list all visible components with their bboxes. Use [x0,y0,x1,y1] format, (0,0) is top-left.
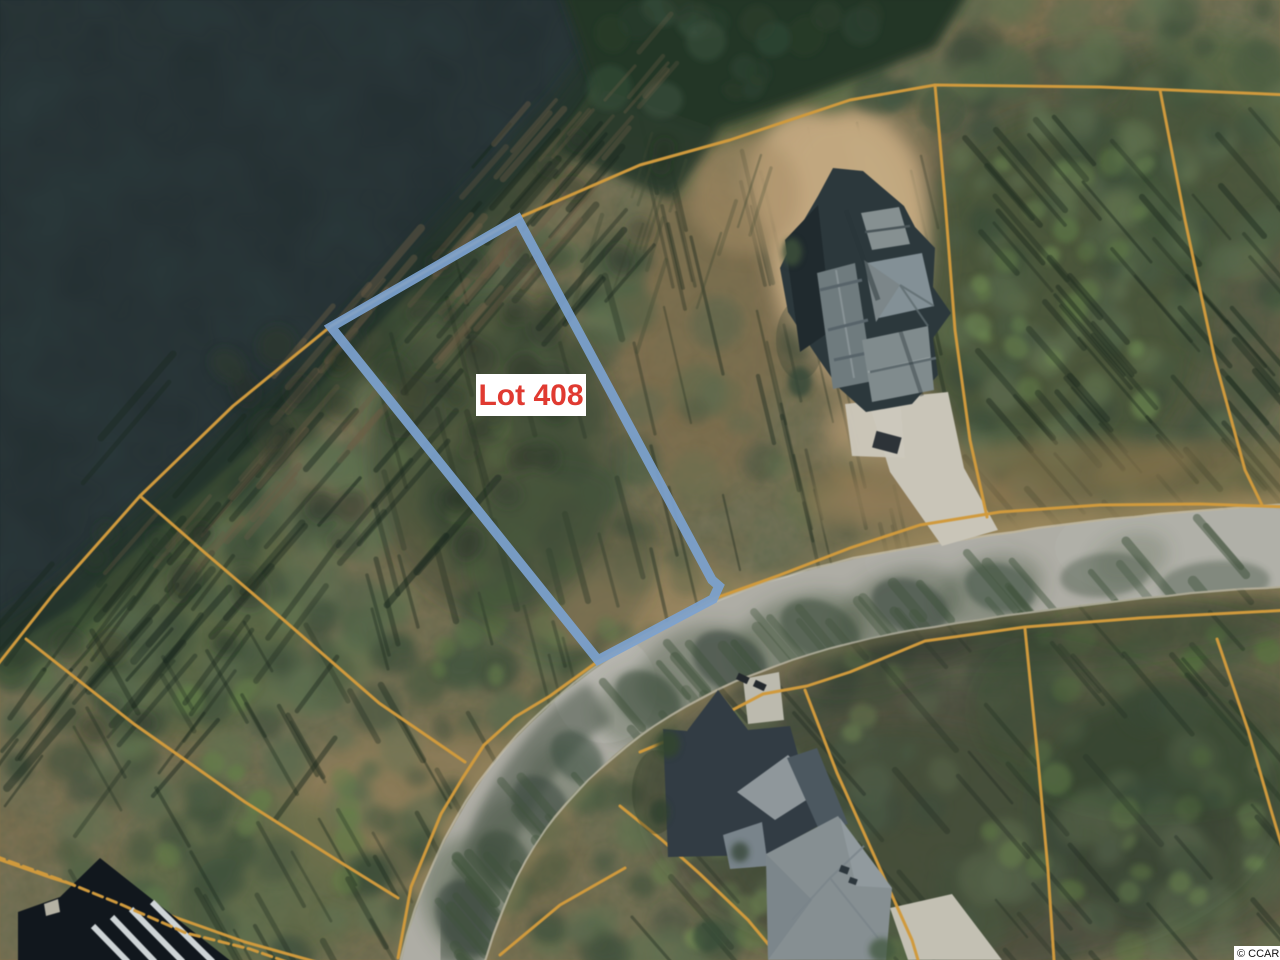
svg-text:© CCAR: © CCAR [1237,948,1279,960]
svg-text:Lot 408: Lot 408 [478,379,583,412]
